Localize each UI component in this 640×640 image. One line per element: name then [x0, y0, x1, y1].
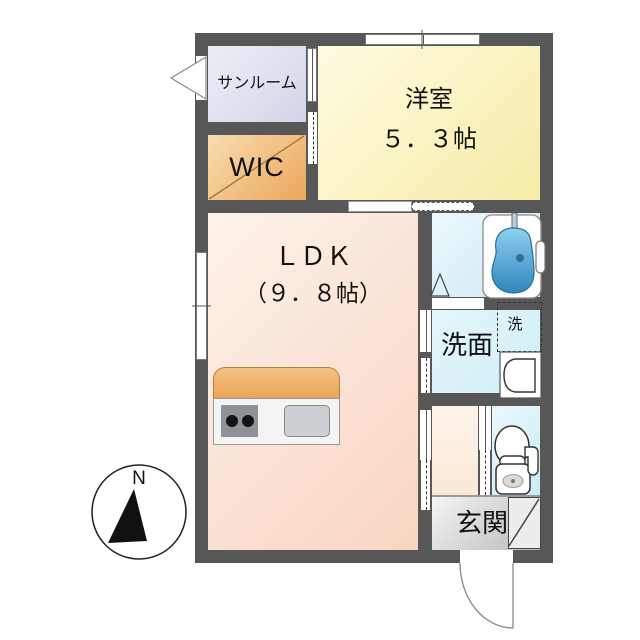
sliding-door-western — [348, 201, 412, 212]
entrance-label: 玄関 — [432, 509, 532, 539]
stove-icon — [221, 405, 258, 437]
room-toilet — [492, 406, 540, 497]
bath-entry-opening — [432, 298, 484, 309]
entrance-door-arc — [460, 563, 513, 628]
room-hallway — [432, 406, 478, 497]
sliding-door-track-toilet — [480, 450, 490, 495]
sliding-door-sunroom-western — [307, 48, 317, 102]
wic-label: WIC — [208, 152, 306, 183]
wall-sunroom-wic — [208, 122, 318, 135]
ldk-label: ＬＤＫ — [208, 242, 418, 272]
sink-icon — [284, 405, 330, 437]
sunroom-door-gap — [196, 56, 207, 100]
sliding-door-track-washroom — [421, 358, 430, 393]
compass-north-label: N — [124, 468, 154, 490]
sliding-door-track-hallway — [421, 460, 430, 510]
wall-washroom-hall — [418, 393, 540, 406]
window-western-top — [365, 34, 480, 45]
washroom-label: 洗面 — [432, 331, 502, 361]
sliding-door-track-western — [412, 202, 474, 211]
wall-right — [540, 33, 553, 563]
washer-label: 洗 — [500, 316, 530, 333]
western-room-size: ５．３帖 — [318, 126, 540, 154]
entrance-door-gap — [460, 550, 513, 563]
floor-plan: サンルーム WIC 洋室 ５．３帖 ＬＤＫ （９．８帖） 洗面 洗 玄関 N — [0, 0, 640, 640]
north-arrow-icon — [108, 489, 147, 543]
ldk-size: （９．８帖） — [208, 280, 418, 306]
window-ldk-left — [196, 252, 207, 360]
western-room-label: 洋室 — [318, 86, 540, 114]
sliding-door-toilet — [479, 406, 491, 450]
room-bath — [432, 213, 540, 297]
sliding-door-hallway — [420, 410, 431, 460]
sunroom-label: サンルーム — [208, 75, 306, 93]
sliding-door-wic — [308, 112, 317, 164]
kitchen-counter — [213, 367, 340, 402]
sliding-door-washroom — [420, 310, 431, 352]
room-western — [318, 46, 540, 200]
